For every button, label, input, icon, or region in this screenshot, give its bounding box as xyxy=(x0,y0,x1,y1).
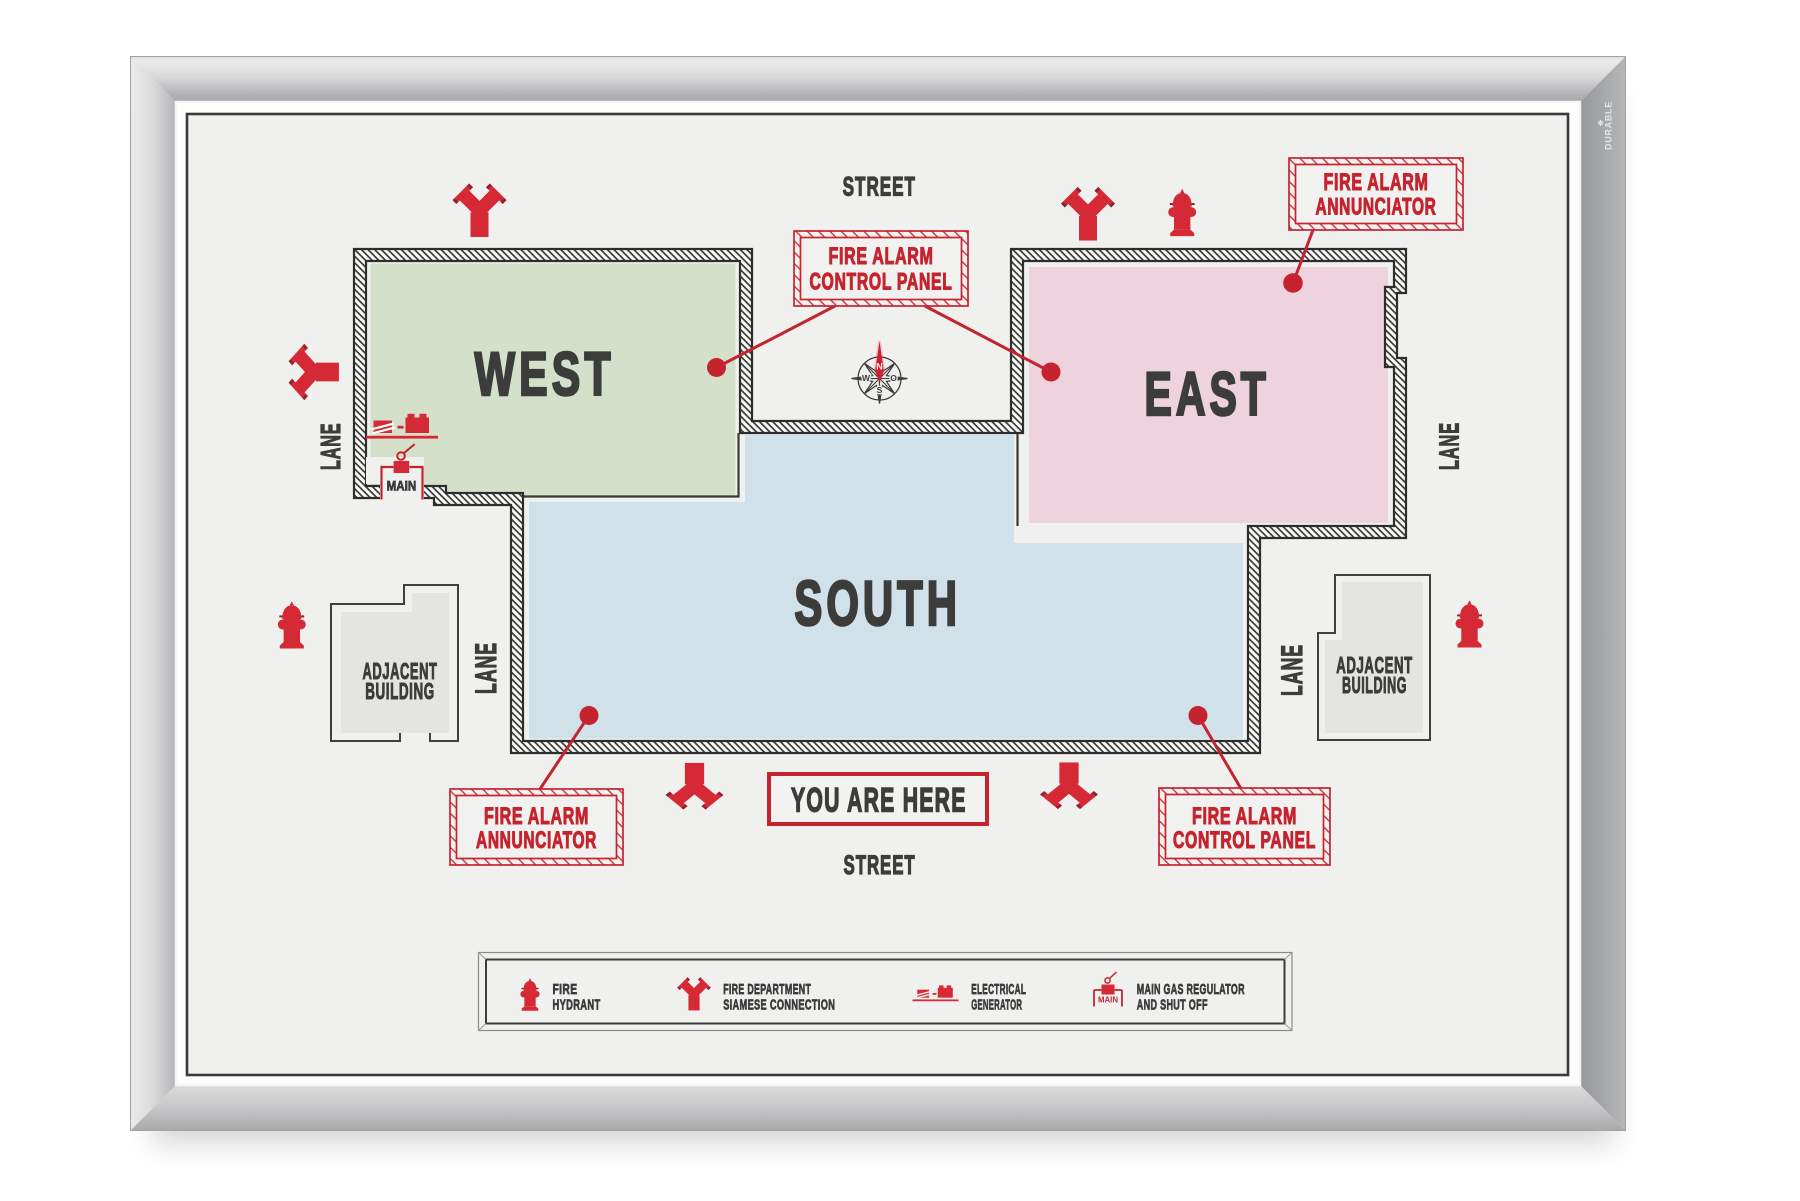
svg-text:GENERATOR: GENERATOR xyxy=(971,997,1022,1014)
svg-text:N: N xyxy=(876,362,883,372)
svg-text:LANE: LANE xyxy=(1276,644,1309,696)
svg-text:W: W xyxy=(862,373,871,383)
svg-text:FIRE ALARM: FIRE ALARM xyxy=(1324,169,1429,196)
svg-text:ANNUNCIATOR: ANNUNCIATOR xyxy=(1316,194,1437,221)
svg-text:BUILDING: BUILDING xyxy=(365,678,435,704)
svg-text:LANE: LANE xyxy=(315,423,346,471)
svg-text:LANE: LANE xyxy=(1434,422,1465,470)
svg-text:LANE: LANE xyxy=(470,642,503,694)
svg-text:FIRE DEPARTMENT: FIRE DEPARTMENT xyxy=(723,981,811,998)
svg-text:MAIN: MAIN xyxy=(387,479,417,494)
svg-text:S: S xyxy=(877,385,883,395)
svg-text:AND SHUT OFF: AND SHUT OFF xyxy=(1137,997,1208,1014)
svg-text:FIRE ALARM: FIRE ALARM xyxy=(829,243,934,270)
svg-text:STREET: STREET xyxy=(844,850,916,880)
svg-text:WEST: WEST xyxy=(475,340,615,408)
svg-text:FIRE: FIRE xyxy=(553,981,578,998)
svg-text:ANNUNCIATOR: ANNUNCIATOR xyxy=(476,827,597,854)
svg-text:CONTROL PANEL: CONTROL PANEL xyxy=(1173,827,1316,854)
svg-text:STREET: STREET xyxy=(843,171,916,201)
svg-text:SOUTH: SOUTH xyxy=(794,569,961,639)
svg-text:HYDRANT: HYDRANT xyxy=(553,997,601,1014)
svg-text:ELECTRICAL: ELECTRICAL xyxy=(971,981,1026,998)
svg-text:YOU ARE HERE: YOU ARE HERE xyxy=(791,781,967,819)
svg-text:FIRE ALARM: FIRE ALARM xyxy=(1192,803,1297,830)
svg-text:DURABLE: DURABLE xyxy=(1604,101,1615,150)
svg-text:MAIN: MAIN xyxy=(1098,995,1118,1005)
svg-text:FIRE ALARM: FIRE ALARM xyxy=(484,803,589,830)
svg-text:MAIN GAS REGULATOR: MAIN GAS REGULATOR xyxy=(1137,981,1245,998)
svg-text:BUILDING: BUILDING xyxy=(1342,672,1407,698)
svg-text:SIAMESE CONNECTION: SIAMESE CONNECTION xyxy=(723,997,835,1014)
svg-text:O: O xyxy=(890,373,897,383)
svg-text:CONTROL PANEL: CONTROL PANEL xyxy=(810,269,953,296)
svg-text:EAST: EAST xyxy=(1145,360,1270,428)
